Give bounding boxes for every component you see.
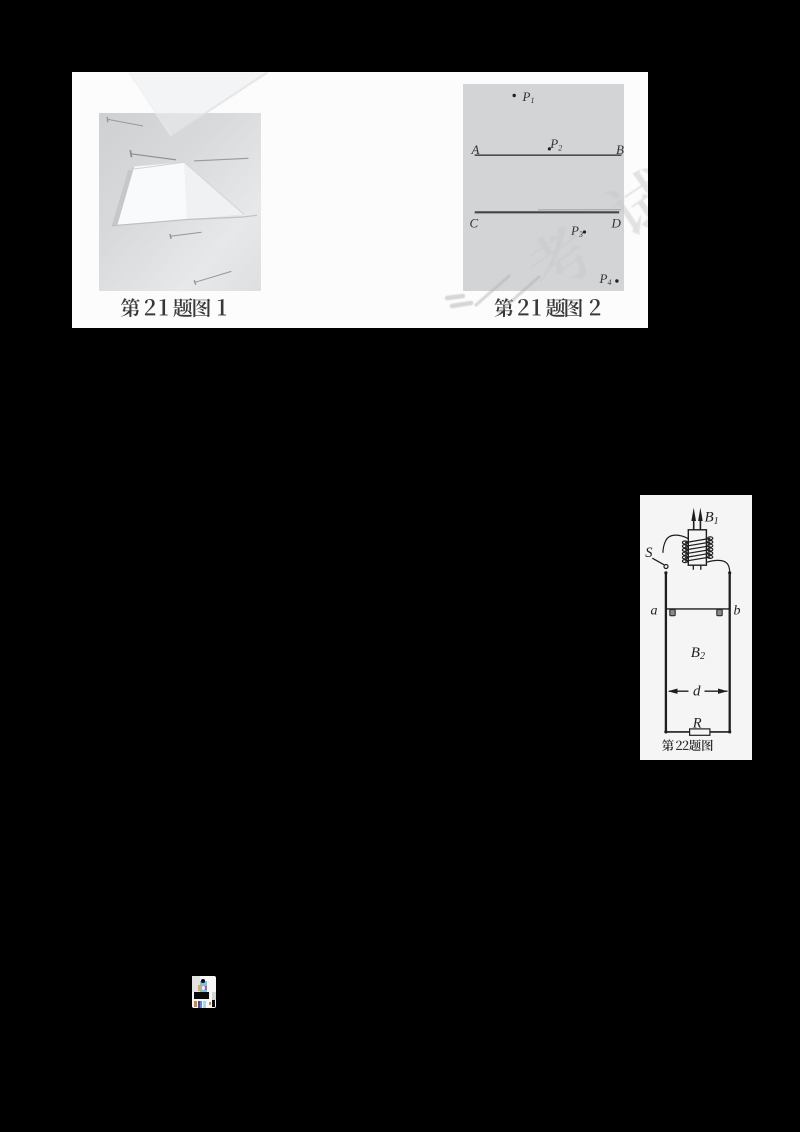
svg-text:b: b (734, 604, 741, 619)
svg-text:d: d (693, 684, 701, 700)
svg-text:S: S (645, 545, 653, 561)
svg-text:B1: B1 (705, 510, 719, 528)
svg-text:a: a (651, 604, 658, 619)
svg-text:B2: B2 (691, 645, 705, 662)
